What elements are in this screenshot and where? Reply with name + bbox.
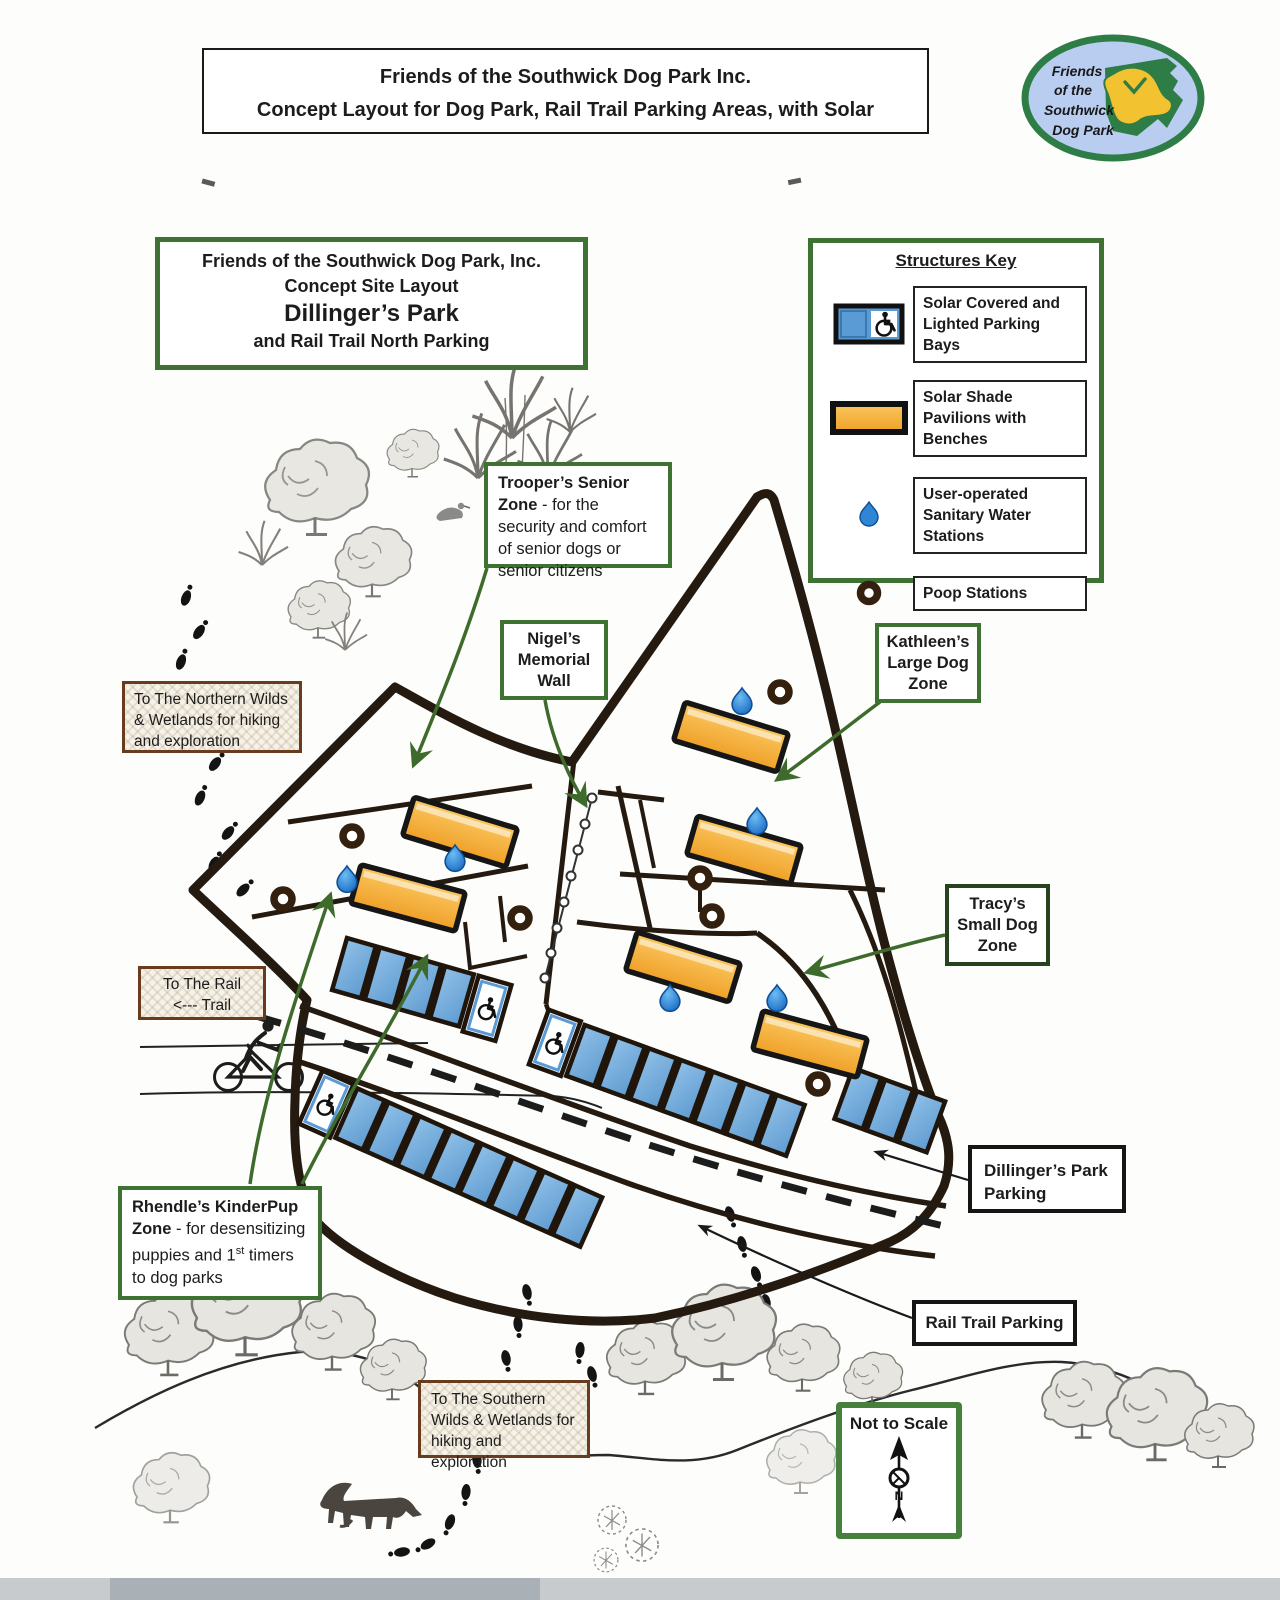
label-rail-trail-parking: Rail Trail Parking: [912, 1300, 1077, 1346]
key-row-poop: Poop Stations: [825, 570, 1087, 616]
label-dillingers-park-parking: Dillinger’s Park Parking: [968, 1145, 1126, 1213]
poop-station: [771, 683, 789, 701]
poop-station: [343, 827, 361, 845]
site-title-line4: and Rail Trail North Parking: [160, 329, 583, 354]
northern-text: To The Northern Wilds & Wetlands for hik…: [134, 691, 288, 750]
map-title-line2: Concept Layout for Dog Park, Rail Trail …: [204, 94, 927, 127]
water-station: [747, 808, 767, 834]
label-kathleens-large-dog-zone: Kathleen’s Large Dog Zone: [875, 623, 981, 703]
logo-text-line4: Dog Park: [1052, 122, 1115, 138]
water-drop-icon: [825, 498, 913, 532]
structures-key: Structures Key Solar Covered and Lighted…: [808, 238, 1104, 583]
key-label-poop: Poop Stations: [913, 576, 1087, 611]
key-label-parking: Solar Covered and Lighted Parking Bays: [913, 286, 1087, 363]
label-nigels-memorial-wall: Nigel’s Memorial Wall: [500, 620, 608, 700]
scan-mark: [201, 179, 215, 187]
poop-station-icon: [825, 578, 913, 608]
poop-station: [691, 869, 709, 887]
site-concept-title-box: Friends of the Southwick Dog Park, Inc. …: [155, 237, 588, 370]
scanned-map-page: Friends of the Southwick Dog Park Inc. C…: [0, 0, 1280, 1600]
rhendles-sup: st: [236, 1245, 245, 1257]
arrow-rhendles-zone: [250, 896, 330, 1184]
kathleens-text: Kathleen’s Large Dog Zone: [879, 632, 977, 695]
site-title-line2: Concept Site Layout: [160, 274, 583, 299]
solar-shade-pavilion: [674, 702, 789, 772]
arrow-tracys-zone: [808, 935, 945, 972]
solar-shade-pavilion: [753, 1011, 868, 1078]
label-rhendles-kinderpup-zone: Rhendle’s KinderPup Zone - for desensiti…: [118, 1186, 322, 1300]
key-row-pavilion: Solar Shade Pavilions with Benches: [825, 376, 1087, 460]
logo-text-line2: of the: [1054, 82, 1092, 98]
label-tracys-small-dog-zone: Tracy’s Small Dog Zone: [945, 884, 1050, 966]
structures-key-title: Structures Key: [825, 251, 1087, 271]
fox-sketch: [320, 1483, 422, 1529]
rail-trail-parking-text: Rail Trail Parking: [926, 1313, 1064, 1333]
site-title-line1: Friends of the Southwick Dog Park, Inc.: [160, 249, 583, 274]
map-title-line1: Friends of the Southwick Dog Park Inc.: [204, 61, 927, 94]
cyclist-sketch: [215, 1020, 303, 1090]
friends-of-southwick-dog-park-logo: Friends of the Southwick Dog Park: [1015, 28, 1210, 168]
dillingers-text: Dillinger’s Park Parking: [984, 1161, 1108, 1203]
poop-station: [274, 890, 292, 908]
compass-n-label: N: [895, 1489, 904, 1503]
poop-station: [703, 907, 721, 925]
not-to-scale-box: Not to Scale N: [836, 1402, 962, 1539]
tracys-text: Tracy’s Small Dog Zone: [949, 894, 1046, 957]
rail-text-line1: To The Rail: [141, 974, 263, 995]
poop-station: [809, 1075, 827, 1093]
poop-station: [511, 909, 529, 927]
scan-edge-band-dark: [110, 1578, 540, 1600]
logo-text-line3: Southwick: [1044, 102, 1115, 118]
map-title-box: Friends of the Southwick Dog Park Inc. C…: [202, 48, 929, 134]
water-station: [337, 866, 357, 892]
not-to-scale-text: Not to Scale: [842, 1414, 956, 1434]
bird-sketch: [437, 503, 471, 521]
rail-text-line2: <--- Trail: [141, 995, 263, 1016]
nigels-text: Nigel’s Memorial Wall: [504, 629, 604, 692]
scan-mark: [788, 178, 802, 186]
water-station: [767, 985, 787, 1011]
key-row-parking: Solar Covered and Lighted Parking Bays: [825, 281, 1087, 367]
arrow-dillingers-parking: [876, 1152, 968, 1180]
key-row-water: User-operated Sanitary Water Stations: [825, 469, 1087, 561]
logo-text-line1: Friends: [1052, 63, 1103, 79]
site-title-line3: Dillinger’s Park: [160, 299, 583, 329]
key-label-pavilion: Solar Shade Pavilions with Benches: [913, 380, 1087, 457]
label-southern-wilds: To The Southern Wilds & Wetlands for hik…: [418, 1380, 590, 1458]
horizon-sketch: [95, 1254, 1254, 1572]
water-station: [732, 688, 752, 714]
label-troopers-senior-zone: Trooper’s Senior Zone - for the security…: [484, 462, 672, 568]
compass-north-icon: N: [873, 1434, 925, 1530]
parking-bay-icon: [825, 302, 913, 346]
key-label-water: User-operated Sanitary Water Stations: [913, 477, 1087, 554]
solar-shade-pavilion: [626, 932, 741, 1002]
pavilion-icon: [825, 399, 913, 437]
label-northern-wilds: To The Northern Wilds & Wetlands for hik…: [122, 681, 302, 753]
vegetation-sketch-northwest: [239, 429, 439, 650]
label-to-the-rail-trail: To The Rail <--- Trail: [138, 966, 266, 1020]
solar-shade-pavilion: [351, 865, 466, 932]
